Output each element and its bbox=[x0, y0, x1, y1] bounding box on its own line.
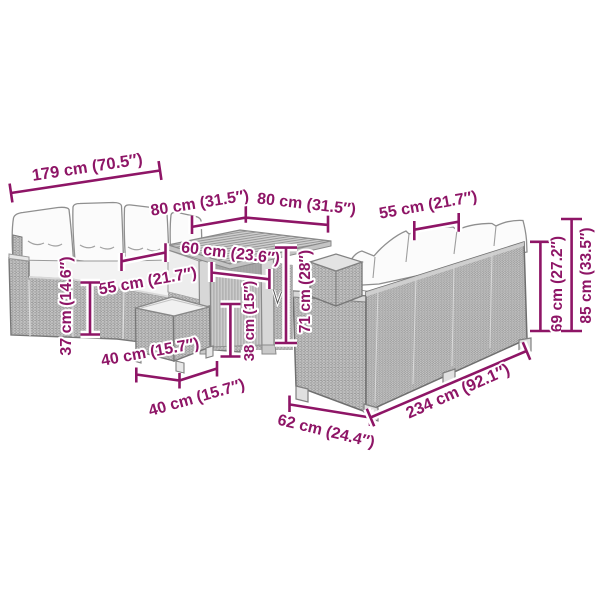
svg-text:37 cm (14.6″): 37 cm (14.6″) bbox=[58, 256, 75, 355]
svg-text:85 cm (33.5″): 85 cm (33.5″) bbox=[578, 227, 595, 323]
svg-text:69 cm (27.2″): 69 cm (27.2″) bbox=[549, 236, 566, 332]
svg-text:71 cm (28″): 71 cm (28″) bbox=[297, 250, 314, 333]
svg-text:38 cm (15″): 38 cm (15″) bbox=[241, 281, 258, 362]
